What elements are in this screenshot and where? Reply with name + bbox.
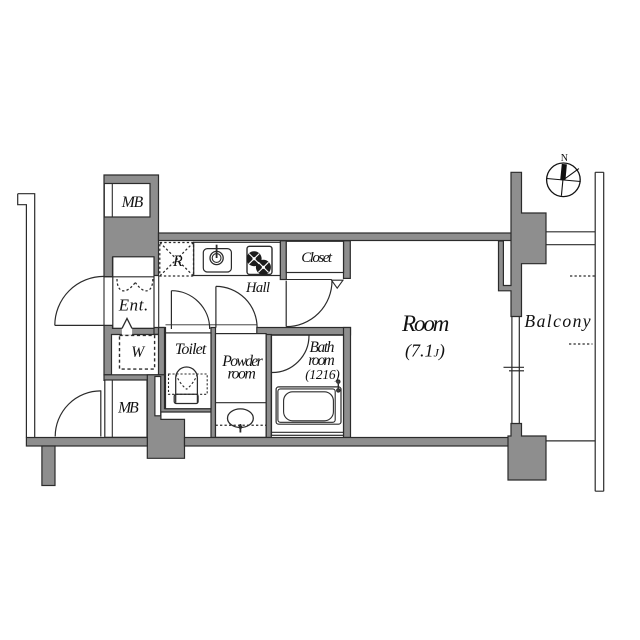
svg-text:Ent.: Ent.	[118, 295, 149, 314]
svg-text:room: room	[228, 365, 256, 382]
svg-text:Room: Room	[401, 311, 449, 336]
svg-text:(7.1J): (7.1J)	[405, 341, 445, 362]
svg-text:Hall: Hall	[245, 280, 270, 296]
svg-text:Closet: Closet	[301, 250, 333, 266]
svg-text:(1216): (1216)	[305, 367, 340, 382]
svg-text:W: W	[131, 344, 146, 361]
svg-text:Toilet: Toilet	[175, 341, 207, 358]
svg-text:N: N	[561, 153, 568, 164]
svg-text:MB: MB	[117, 399, 139, 416]
svg-text:R: R	[172, 253, 183, 270]
svg-text:Balcony: Balcony	[524, 311, 590, 331]
svg-text:MB: MB	[121, 194, 144, 211]
